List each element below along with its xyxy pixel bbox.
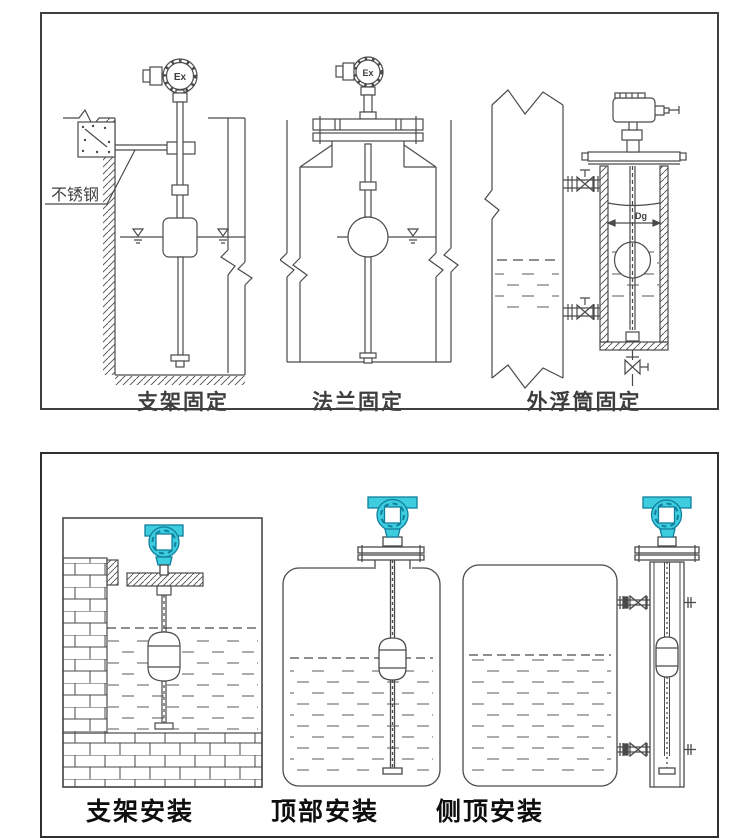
caption-bracket-installation: 支架安装 xyxy=(60,792,220,828)
cable-gland xyxy=(343,63,354,80)
head-base xyxy=(361,87,375,95)
drain-valve-icon xyxy=(625,360,648,386)
diameter-label: Dg xyxy=(635,211,647,221)
wall-ledge xyxy=(107,560,118,585)
flange-plate-lower xyxy=(635,555,699,560)
flange-plate-upper xyxy=(635,547,699,553)
rod-end-tip xyxy=(364,358,372,363)
flange-plate-upper xyxy=(358,547,424,553)
lower-pipe xyxy=(563,304,600,320)
flange-plate-lower xyxy=(313,133,423,141)
upper-valve-icon xyxy=(630,596,646,609)
display-window xyxy=(385,507,401,523)
right-inner-wall xyxy=(221,118,235,373)
neck-stub xyxy=(160,565,168,575)
flange-nut xyxy=(658,537,676,546)
caption-side-top-installation: 侧顶安装 xyxy=(410,792,570,828)
transmitter-housing xyxy=(613,98,655,122)
flange-bolt-left xyxy=(582,153,588,160)
cable-connector xyxy=(655,106,679,115)
transmitter-neck xyxy=(385,529,400,537)
transmitter-neck xyxy=(660,529,675,537)
brick-wall xyxy=(63,558,107,733)
stem-block xyxy=(627,140,639,152)
brick-base xyxy=(63,733,262,787)
float-capsule xyxy=(379,638,406,680)
head-base xyxy=(173,93,187,102)
lower-stub xyxy=(684,744,696,755)
rod-end-stop xyxy=(659,768,675,774)
caption-flange-fixing: 法兰固定 xyxy=(278,386,438,416)
guide-rod xyxy=(178,257,183,355)
ex-marking: Ex xyxy=(362,68,373,78)
upper-pipe-flange xyxy=(624,597,628,608)
vessel-liquid xyxy=(495,264,559,310)
shelf-nut xyxy=(157,586,171,595)
stem-tube xyxy=(364,95,372,112)
lower-valve-icon xyxy=(630,743,646,756)
guide-rod xyxy=(365,257,371,353)
side-top-installation-diagram xyxy=(455,490,710,790)
float xyxy=(163,218,197,257)
flange-nut xyxy=(383,537,402,546)
lower-pipe-flange xyxy=(624,744,628,755)
level-marker-icon xyxy=(133,229,143,243)
upper-pipe xyxy=(563,176,600,192)
upper-pipe xyxy=(617,596,650,609)
display-window xyxy=(659,507,675,523)
tank-inner-wall-left xyxy=(293,167,307,362)
liquid-area xyxy=(290,661,433,779)
ex-marking: Ex xyxy=(174,72,187,83)
rod-end-stop xyxy=(171,355,189,361)
lower-coupling xyxy=(626,332,639,341)
float-capsule xyxy=(148,632,180,681)
installation-diagram-page: { "colors": { "line": "#4a4a4a", "panel_… xyxy=(0,0,750,840)
tank-outer-wall-left xyxy=(280,120,294,362)
cable-connector xyxy=(336,66,343,77)
chamber-bottom-cap xyxy=(600,342,668,350)
cable-connector xyxy=(143,70,150,82)
material-label: 不锈钢 xyxy=(51,186,99,204)
stem-coupling xyxy=(172,185,188,195)
right-outer-wall xyxy=(238,118,252,375)
bracket-fixing-diagram: Ex 不锈钢 xyxy=(45,50,260,395)
stem-tube xyxy=(365,144,371,217)
flange-plate-upper xyxy=(313,119,423,130)
chamber-wall-left xyxy=(600,166,608,342)
rod-end-stop xyxy=(360,353,376,358)
liquid-area xyxy=(108,631,258,731)
rod-end-stop xyxy=(155,723,173,729)
lower-pipe xyxy=(617,743,650,756)
float-capsule xyxy=(656,637,678,677)
level-marker-icon xyxy=(408,229,418,243)
chamber-wall-right xyxy=(660,166,668,342)
drain-stem xyxy=(626,350,639,360)
vessel-wall-left xyxy=(485,105,499,378)
vessel-bottom-break xyxy=(492,365,563,388)
external-chamber-fixing-diagram: Dg xyxy=(475,60,715,415)
tank-outer-wall-right xyxy=(444,120,458,362)
rod-end-tip xyxy=(176,361,184,367)
tank-inner-wall-right xyxy=(429,167,443,362)
caption-bracket-fixing: 支架固定 xyxy=(103,386,263,416)
rod-end-stop xyxy=(383,768,402,774)
display-window xyxy=(156,534,172,550)
stem-coupling xyxy=(360,182,376,190)
chamber-flange xyxy=(588,152,680,161)
caption-external-chamber-fixing: 外浮筒固定 xyxy=(504,386,664,416)
transmitter-neck xyxy=(156,557,172,565)
stem-tube xyxy=(177,102,183,218)
stem-coupling xyxy=(622,130,642,140)
caption-top-installation: 顶部安装 xyxy=(245,792,405,828)
liquid-area xyxy=(469,658,611,780)
float-ball xyxy=(348,217,388,257)
bracket-installation-diagram xyxy=(60,515,270,795)
upper-stub xyxy=(684,597,696,608)
ground-hatching xyxy=(115,376,245,385)
vessel-top-break xyxy=(492,90,563,114)
flange-nut xyxy=(360,112,376,119)
level-marker-icon xyxy=(218,229,228,243)
flange-fixing-diagram: Ex xyxy=(280,50,465,395)
flange-plate-lower xyxy=(358,555,424,560)
cable-gland xyxy=(150,67,162,85)
flange-bolt-right xyxy=(680,153,686,160)
top-installation-diagram xyxy=(280,490,445,790)
chamber-meniscus xyxy=(608,203,660,206)
